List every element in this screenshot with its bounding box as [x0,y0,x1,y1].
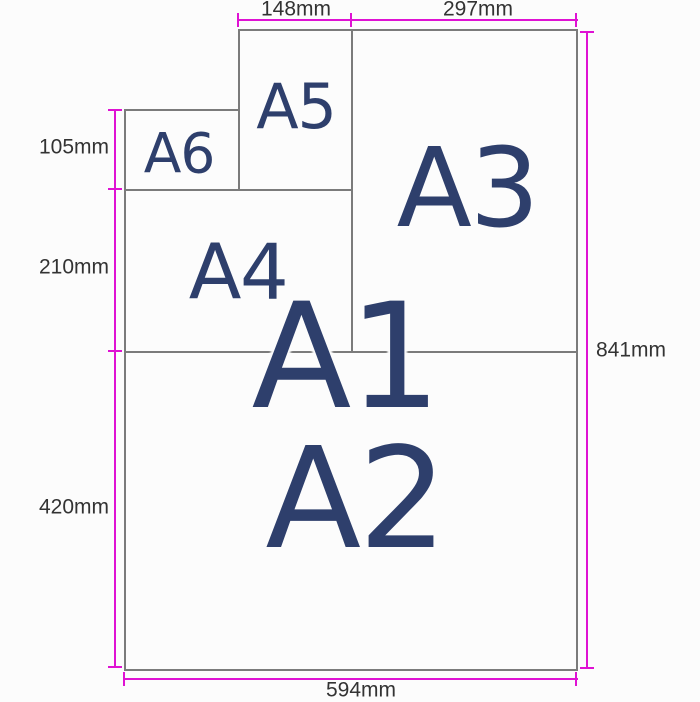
sheet-right-border [576,29,578,671]
dim-label-297mm: 297mm [443,0,513,20]
paper-size-diagram: A1 A2 A3 A4 A5 A6 148mm 297mm 105mm 210m… [0,0,700,700]
dim-tick-left-end [108,666,122,668]
sheet-left-border [124,109,126,671]
a6-a5-divider [238,29,240,191]
sheet-bottom-border [124,669,578,671]
dim-tick-top-start [237,13,239,27]
dim-tick-right-start [580,31,594,33]
dim-tick-left-start [108,109,122,111]
dim-line-left [114,110,116,668]
dim-label-594mm: 594mm [326,680,396,701]
dim-tick-top-mid [350,13,352,27]
paper-label-a6: A6 [144,127,214,182]
paper-label-a3: A3 [397,133,538,243]
paper-label-a2: A2 [265,430,444,570]
dim-label-210mm: 210mm [39,257,109,278]
dim-tick-right-end [580,667,594,669]
a6-top-border [124,109,240,111]
dim-tick-left-mid2 [108,350,122,352]
dim-tick-bottom-start [123,672,125,686]
dim-label-420mm: 420mm [39,497,109,518]
dim-label-841mm: 841mm [596,340,666,361]
dim-tick-left-mid1 [108,188,122,190]
sheet-top-border [238,29,578,31]
dim-tick-bottom-end [575,672,577,686]
dim-line-right [586,31,588,669]
paper-label-a5: A5 [256,76,335,138]
dim-label-148mm: 148mm [261,0,331,20]
paper-label-a4: A4 [189,235,288,312]
dim-tick-top-end [575,13,577,27]
dim-label-105mm: 105mm [39,137,109,158]
